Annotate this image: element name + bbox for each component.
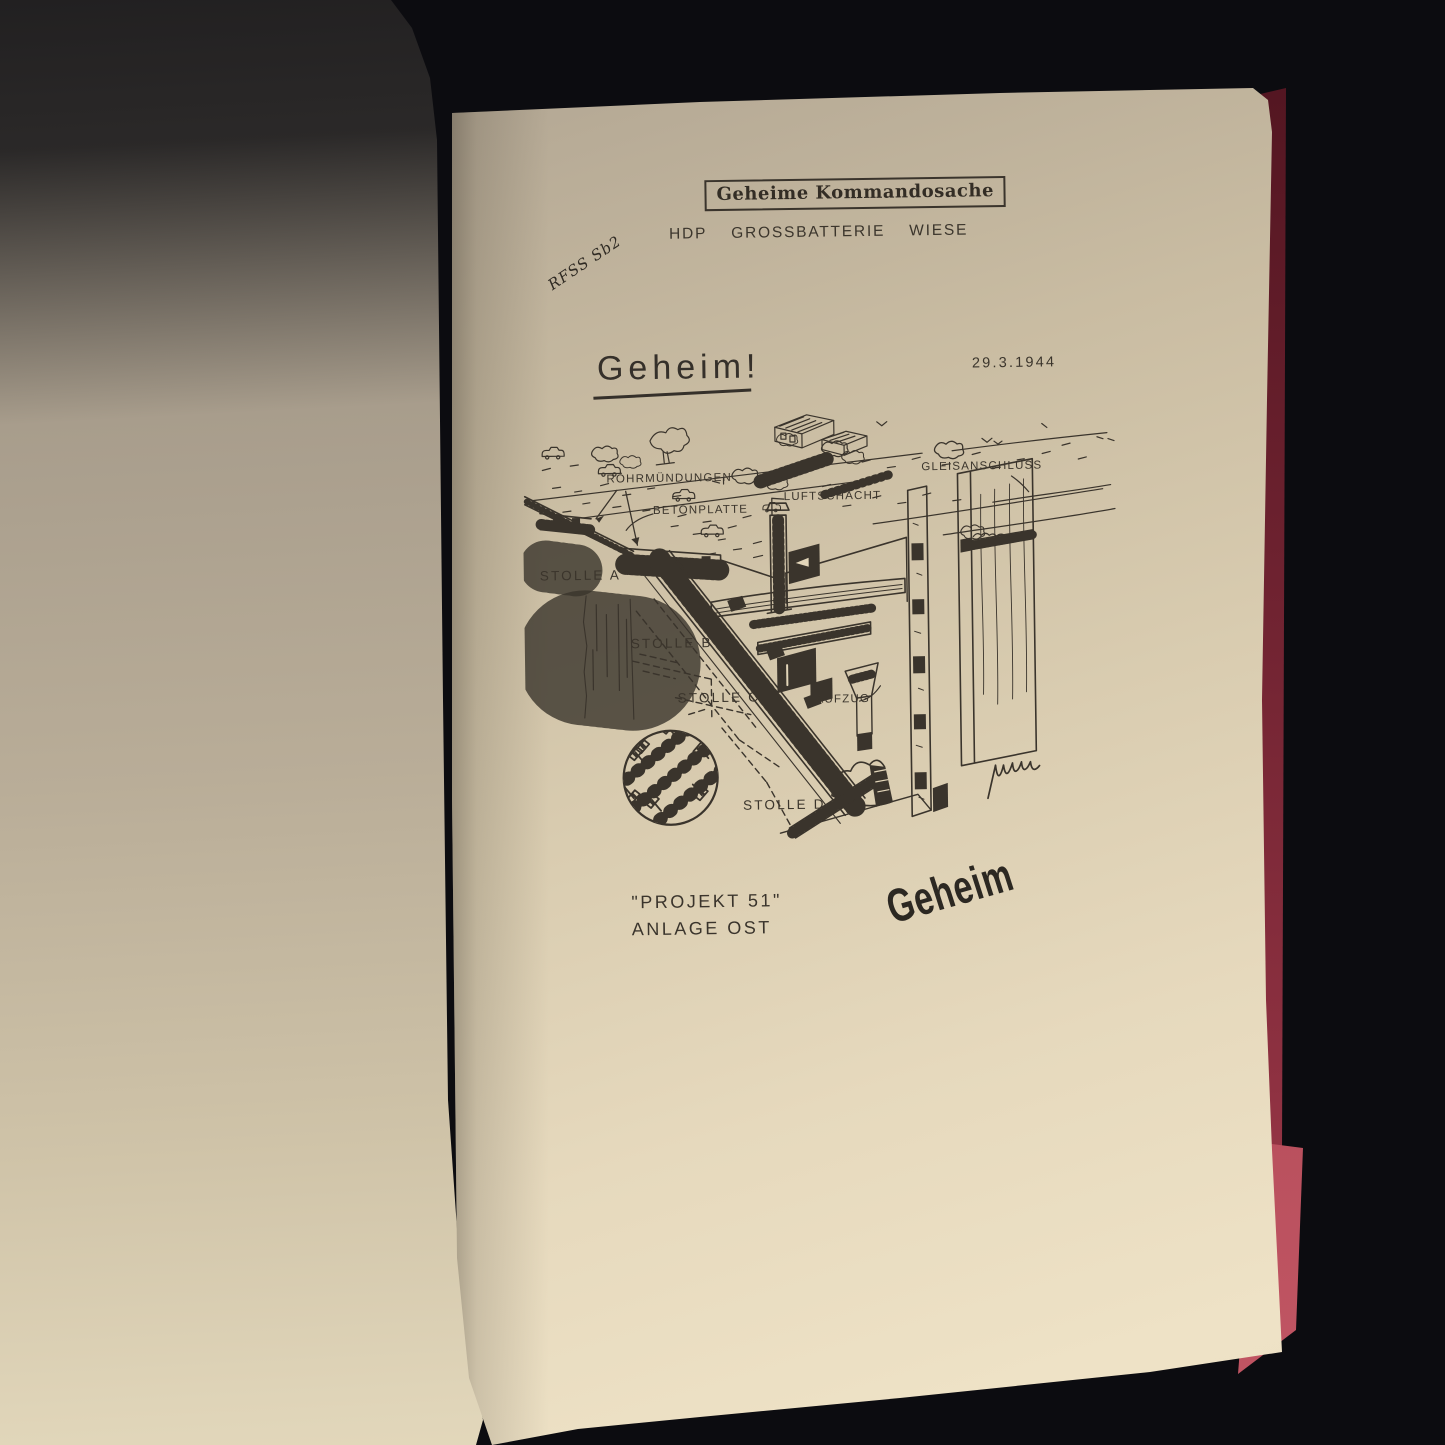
concrete-wall <box>908 486 949 816</box>
diagram-label-roehrmuendungen: RÖHRMÜNDUNGEN <box>606 472 732 486</box>
document-title: HDP GROSSBATTERIE WIESE <box>669 222 968 244</box>
rail-wall <box>957 459 1036 766</box>
diagram-label-gleisanschluss: GLEISANSCHLUSS <box>921 460 1042 474</box>
title-word-hdp: HDP <box>669 225 707 244</box>
document-date: 29.3.1944 <box>972 354 1057 371</box>
diagram-label-luftschacht: LUFTSCHACHT <box>784 490 882 503</box>
book-photograph: Geheime Kommandosache HDP GROSSBATTERIE … <box>0 0 1445 1445</box>
rock-face <box>546 565 634 720</box>
elevator-structure <box>845 663 881 751</box>
diagram-label-stolle-d: STOLLE D <box>743 797 826 813</box>
secret-heading: Geheim! <box>597 347 761 388</box>
title-word-grossbatterie: GROSSBATTERIE <box>731 223 885 243</box>
diagram-label-aufzug: AUFZUG <box>816 693 871 706</box>
project-caption-line2: ANLAGE OST <box>632 914 783 943</box>
cutaway-illustration: RÖHRMÜNDUNGEN BETONPLATTE LUFTSCHACHT GL… <box>521 392 1128 870</box>
diagram-label-stolle-c: STOLLE C <box>677 689 760 705</box>
farmhouses <box>775 414 868 456</box>
diagram-label-betonplatte: BETONPLATTE <box>653 504 748 517</box>
handwritten-annotation: RFSS Sb2 <box>545 232 625 294</box>
project-caption-line1: "PROJEKT 51" <box>631 887 782 916</box>
underground-chamber <box>710 537 908 706</box>
signature-scribble <box>987 762 1039 799</box>
title-word-wiese: WIESE <box>909 222 968 241</box>
air-shaft <box>766 503 792 613</box>
classification-stamp-box: Geheime Kommandosache <box>704 176 1006 211</box>
diagram-label-stolle-a: STOLLE A <box>540 567 621 583</box>
diagram-label-stolle-b: STOLLE B <box>631 635 713 651</box>
document-page-content: Geheime Kommandosache HDP GROSSBATTERIE … <box>0 0 1445 1445</box>
project-caption: "PROJEKT 51" ANLAGE OST <box>631 887 782 943</box>
